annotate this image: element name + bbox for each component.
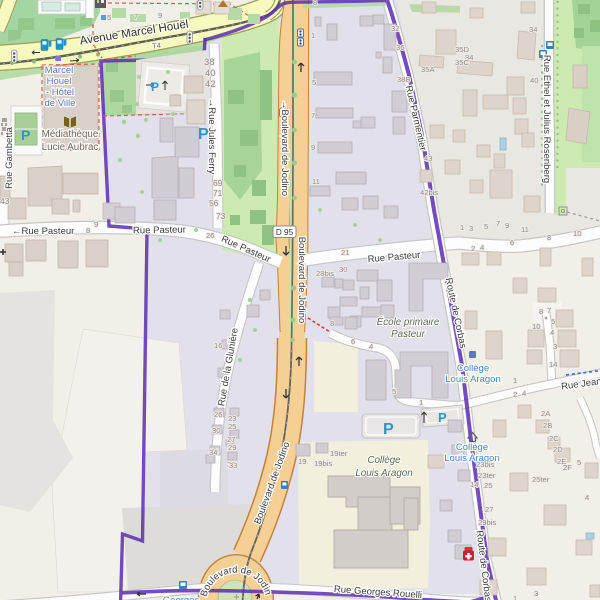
svg-text:7: 7 — [134, 12, 138, 21]
svg-text:2: 2 — [513, 390, 517, 399]
svg-text:P: P — [21, 127, 30, 143]
svg-text:34: 34 — [209, 448, 217, 457]
svg-text:1: 1 — [460, 223, 464, 232]
svg-text:2B: 2B — [543, 421, 552, 430]
svg-text:26: 26 — [206, 231, 214, 240]
svg-text:11: 11 — [521, 225, 529, 234]
svg-text:21: 21 — [341, 248, 349, 257]
svg-text:10: 10 — [573, 229, 581, 238]
svg-text:Louis Aragon: Louis Aragon — [355, 468, 412, 479]
svg-text:25: 25 — [228, 422, 236, 431]
svg-text:Médiathèque: Médiathèque — [42, 129, 99, 140]
svg-text:16: 16 — [214, 341, 222, 350]
svg-text:4: 4 — [480, 243, 484, 252]
svg-text:42: 42 — [205, 79, 216, 90]
svg-text:19: 19 — [298, 457, 306, 466]
svg-text:28bis: 28bis — [316, 269, 334, 278]
svg-text:19bis: 19bis — [314, 459, 332, 468]
svg-text:T4: T4 — [152, 41, 162, 51]
svg-text:8: 8 — [313, 0, 317, 7]
svg-text:36: 36 — [396, 43, 404, 52]
svg-text:1: 1 — [311, 31, 315, 40]
svg-text:P: P — [438, 410, 447, 425]
svg-text:Houel: Houel — [47, 76, 72, 87]
svg-text:23bis: 23bis — [476, 460, 494, 469]
svg-text:Louis Aragon: Louis Aragon — [445, 374, 500, 385]
svg-text:56: 56 — [209, 198, 219, 208]
svg-text:3: 3 — [534, 589, 538, 598]
svg-text:19ter: 19ter — [330, 449, 348, 458]
svg-text:25: 25 — [484, 481, 492, 490]
svg-text:35D: 35D — [455, 45, 469, 54]
svg-text:Rue Gambetta: Rue Gambetta — [4, 126, 15, 188]
svg-text:Lucie Aubrac: Lucie Aubrac — [42, 142, 99, 153]
svg-text:Pasteur: Pasteur — [391, 329, 426, 340]
svg-text:3: 3 — [469, 224, 473, 233]
svg-text:5: 5 — [577, 458, 581, 467]
svg-text:Marcel: Marcel — [45, 65, 74, 76]
svg-text:3: 3 — [553, 342, 557, 351]
svg-text:5: 5 — [392, 387, 396, 396]
svg-text:30: 30 — [339, 265, 347, 274]
svg-text:10: 10 — [532, 322, 540, 331]
svg-text:33: 33 — [229, 461, 237, 470]
svg-text:1: 1 — [513, 376, 517, 385]
svg-text:25ter: 25ter — [532, 475, 550, 484]
svg-text:69: 69 — [213, 178, 223, 188]
svg-text:14: 14 — [470, 480, 478, 489]
svg-text:4: 4 — [369, 342, 373, 351]
svg-text:5: 5 — [484, 222, 488, 231]
svg-text:Collège: Collège — [367, 455, 401, 466]
svg-text:32: 32 — [391, 24, 399, 33]
svg-text:23ter: 23ter — [478, 471, 496, 480]
svg-text:7: 7 — [547, 306, 551, 315]
svg-text:D 95: D 95 — [276, 228, 294, 237]
svg-text:Collège: Collège — [457, 363, 489, 374]
svg-text:11: 11 — [312, 177, 320, 186]
svg-text:5: 5 — [312, 78, 316, 87]
svg-text:École primaire: École primaire — [377, 317, 440, 328]
svg-text:Collège: Collège — [456, 442, 488, 453]
svg-text:43: 43 — [0, 196, 10, 206]
svg-text:2D: 2D — [553, 445, 563, 454]
svg-text:→Rue Jules Ferry: →Rue Jules Ferry — [206, 98, 217, 175]
svg-text:29bis: 29bis — [478, 518, 496, 527]
svg-text:Georges: Georges — [163, 595, 200, 600]
svg-text:71: 71 — [213, 188, 223, 198]
svg-text:2F: 2F — [563, 463, 572, 472]
svg-text:P: P — [383, 421, 394, 438]
svg-text:40: 40 — [530, 76, 538, 85]
svg-text:9: 9 — [158, 11, 162, 20]
svg-text:4: 4 — [522, 389, 526, 398]
svg-text:38: 38 — [204, 57, 215, 68]
svg-text:8: 8 — [330, 319, 334, 328]
svg-text:1: 1 — [513, 594, 517, 600]
svg-text:5: 5 — [107, 13, 111, 22]
svg-text:4: 4 — [585, 493, 589, 502]
svg-text:34: 34 — [529, 25, 537, 34]
svg-text:←Rue Pasteur: ←Rue Pasteur — [12, 226, 74, 237]
svg-text:8: 8 — [86, 226, 90, 235]
svg-text:73: 73 — [216, 211, 226, 221]
svg-text:8: 8 — [539, 307, 543, 316]
svg-text:35C: 35C — [455, 58, 469, 67]
svg-text:29: 29 — [228, 443, 236, 452]
svg-text:6: 6 — [351, 337, 355, 346]
svg-text:→Boulevard de Jodino: →Boulevard de Jodino — [279, 100, 290, 196]
svg-text:14: 14 — [549, 360, 557, 369]
svg-text:2C: 2C — [549, 434, 559, 443]
svg-text:35A: 35A — [421, 65, 435, 74]
svg-text:8: 8 — [547, 233, 551, 242]
svg-text:Rue Ethel et Julius Rosenberg: Rue Ethel et Julius Rosenberg — [541, 55, 552, 183]
svg-text:P: P — [151, 80, 159, 94]
svg-text:de Ville: de Ville — [45, 98, 76, 109]
svg-text:27: 27 — [485, 505, 493, 514]
svg-text:40: 40 — [205, 68, 216, 79]
svg-text:7: 7 — [311, 111, 315, 120]
svg-text:9: 9 — [505, 221, 509, 230]
svg-text:2: 2 — [471, 244, 475, 253]
svg-text:Rue Pasteur: Rue Pasteur — [133, 225, 186, 237]
svg-text:9: 9 — [94, 220, 98, 229]
svg-text:38B: 38B — [397, 75, 411, 84]
svg-text:6: 6 — [510, 238, 514, 247]
svg-text:- Hôtel: - Hôtel — [46, 87, 74, 98]
svg-text:9: 9 — [311, 143, 315, 152]
svg-text:26: 26 — [214, 410, 222, 419]
svg-text:43: 43 — [424, 154, 432, 163]
svg-text:2A: 2A — [541, 409, 551, 418]
svg-text:30: 30 — [212, 426, 220, 435]
svg-text:4: 4 — [550, 328, 554, 337]
svg-text:7: 7 — [496, 219, 500, 228]
svg-text:5: 5 — [551, 317, 555, 326]
svg-text:1: 1 — [419, 398, 423, 407]
svg-text:42bis: 42bis — [420, 188, 438, 197]
svg-text:Boulevard de Jodino: Boulevard de Jodino — [296, 237, 307, 324]
